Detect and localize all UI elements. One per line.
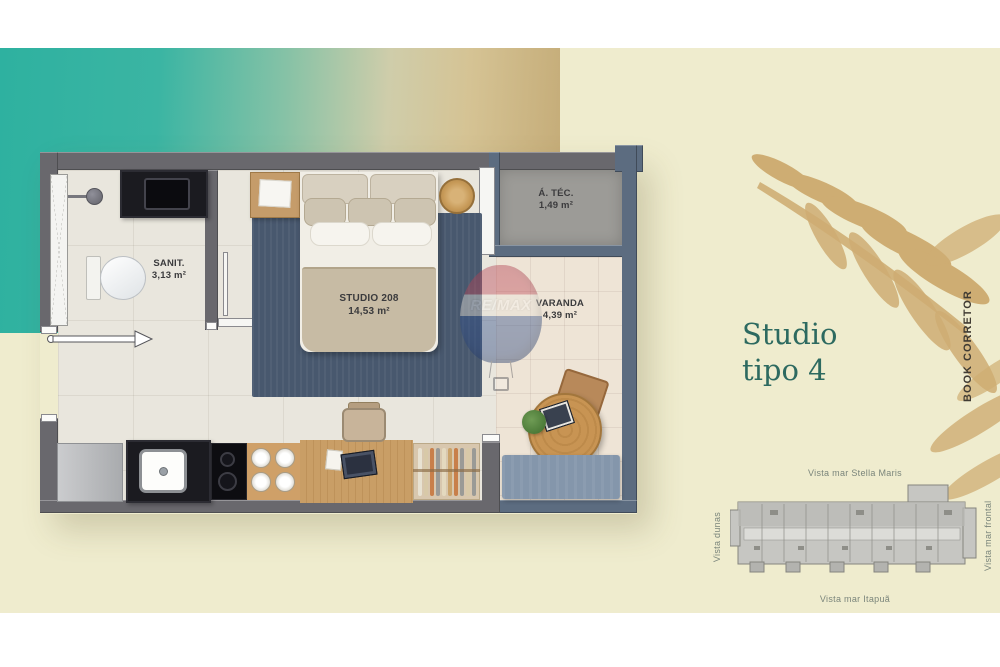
room-label-sanit: SANIT. 3,13 m²: [124, 258, 214, 283]
rack-item: [466, 448, 470, 496]
kitchen-counter-granite: [126, 440, 211, 503]
rack-item: [454, 448, 458, 496]
table-plant: [522, 410, 546, 434]
floor-plan: SANIT. 3,13 m² STUDIO 208 14,53 m² Á. TÉ…: [40, 152, 637, 514]
refrigerator: [57, 443, 123, 502]
wall-stub-varanda: [482, 442, 500, 513]
burner-small: [220, 452, 235, 467]
wall-atec-bottom: [489, 245, 637, 257]
varanda-bench: [502, 455, 620, 499]
keyplan-label-east: Vista mar frontal: [983, 501, 993, 571]
wall-knob: [86, 188, 103, 205]
kitchen-faucet: [159, 467, 168, 476]
room-label-studio: STUDIO 208 14,53 m²: [300, 292, 438, 318]
rack-item: [448, 448, 452, 496]
shower-stall: [50, 174, 68, 326]
doorframe-cap-entry-bottom: [41, 414, 57, 422]
towel: [258, 179, 291, 208]
rack-item: [442, 448, 446, 496]
rack-item: [472, 448, 476, 496]
room-area: 4,39 m²: [543, 310, 577, 321]
rack-item: [430, 448, 434, 496]
wall-top: [40, 152, 623, 170]
desk-chair: [342, 408, 386, 442]
keyplan-label-south: Vista mar Itapuã: [705, 594, 1000, 604]
rack-item: [436, 448, 440, 496]
room-name: Á. TÉC.: [538, 188, 573, 199]
bathroom-counter: [120, 170, 208, 218]
room-name: STUDIO 208: [339, 293, 398, 304]
page-title: Studio tipo 4: [742, 316, 838, 388]
nightstand: [250, 172, 300, 218]
book-corretor-label: BOOK CORRETOR: [962, 326, 974, 402]
room-label-atec: Á. TÉC. 1,49 m²: [506, 188, 606, 213]
wall-left-lower: [40, 418, 58, 513]
plate-shelf: [247, 443, 300, 500]
pillow-white-left: [310, 222, 370, 246]
rattan-tray: [439, 178, 475, 214]
keyplan-label-north: Vista mar Stella Maris: [705, 468, 1000, 478]
brochure-page: SANIT. 3,13 m² STUDIO 208 14,53 m² Á. TÉ…: [0, 0, 1000, 667]
towel-rail: [68, 195, 88, 198]
laptop: [340, 450, 377, 479]
doorframe-cap-varanda: [482, 434, 500, 442]
burner-large: [218, 472, 237, 491]
bathroom-door-leaf: [218, 318, 254, 327]
wood-counter-desk: [300, 440, 413, 503]
plate: [251, 472, 271, 492]
entry-door-arrow: [44, 328, 156, 350]
doorframe-cap-bath: [206, 322, 217, 330]
room-area: 14,53 m²: [348, 306, 390, 317]
wall-varanda-bottom: [489, 500, 637, 513]
cooktop: [211, 443, 247, 500]
rack-item: [424, 448, 428, 496]
building-key-plan: Vista mar Stella Maris Vista mar Itapuã …: [705, 460, 1000, 615]
room-area: 3,13 m²: [152, 270, 186, 281]
building-outline: [730, 482, 980, 588]
title-line-2: tipo 4: [742, 352, 838, 388]
room-label-varanda: VARANDA 4,39 m²: [510, 298, 610, 323]
room-name: SANIT.: [153, 258, 184, 269]
bathroom-door-open-leaf: [223, 252, 228, 316]
rack-item: [418, 448, 422, 496]
room-area: 1,49 m²: [539, 200, 573, 211]
bathroom-sink: [144, 178, 190, 210]
title-line-1: Studio: [742, 316, 838, 352]
wall-right: [622, 145, 637, 513]
room-name: VARANDA: [536, 298, 584, 309]
pillow-white-right: [372, 222, 432, 246]
plate: [275, 472, 295, 492]
keyplan-label-west: Vista dunas: [712, 502, 722, 572]
toilet-tank: [86, 256, 101, 300]
rack-item: [460, 448, 464, 496]
plate: [251, 448, 271, 468]
double-bed: STUDIO 208 14,53 m²: [300, 172, 438, 352]
plate: [275, 448, 295, 468]
rack-rail: [413, 469, 480, 472]
